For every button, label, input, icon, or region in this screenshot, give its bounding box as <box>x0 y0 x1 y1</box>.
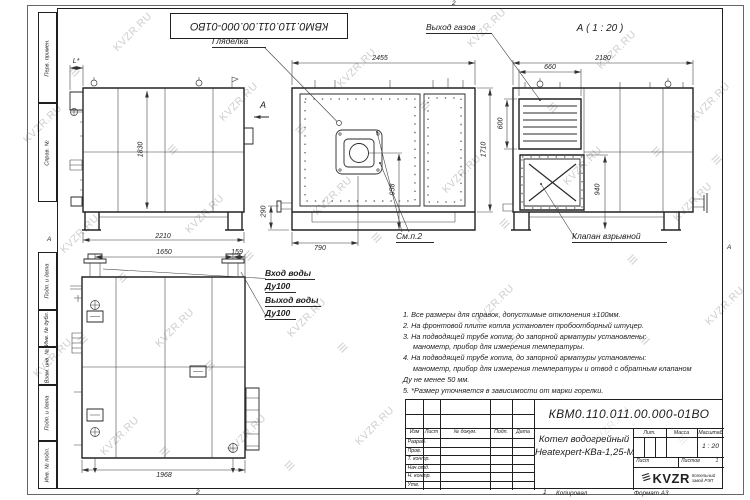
dim-1650: 1650 <box>139 248 189 257</box>
strip-inv-podl: Инв. № подл. <box>38 441 57 489</box>
tb-product-line2: Heatexpert-КВа-1,25-М <box>535 446 633 460</box>
zone-marker-bottom-left: 2 <box>196 489 200 496</box>
water-outlet-dn-label: Ду100 <box>265 308 296 320</box>
dim-600: 600 <box>497 104 506 144</box>
dim-2180: 2180 <box>573 54 633 63</box>
note-line: 2. На фронтовой плите котла установлен п… <box>403 321 738 332</box>
view-a-title: А ( 1 : 20 ) <box>556 23 644 34</box>
note-line: 3. На подводящей трубе котла, до запорно… <box>403 332 738 343</box>
tb-sheets-value: 1 <box>711 458 723 465</box>
copied-label: Копировал <box>556 490 587 497</box>
tb-row-nachotd: Нач.отд. <box>408 465 441 472</box>
dim-1710: 1710 <box>480 130 489 170</box>
tb-mass-label: Масса <box>666 430 697 437</box>
note-line: 5. *Размер уточняется в зависимости от м… <box>403 386 738 397</box>
tb-row-tkontr: Т. контр. <box>408 456 441 463</box>
tb-row-nkontr: Н. контр. <box>408 473 441 480</box>
tb-scale-value: 1 : 20 <box>697 443 724 450</box>
note-line: манометр, прибор для измерения температу… <box>403 342 738 353</box>
tb-lit-label: Лит. <box>633 430 666 437</box>
section-arrow-label: А <box>260 100 266 110</box>
dim-159: 159 <box>226 248 248 257</box>
strip-inv-dubl: Инв. № дубл. <box>38 310 57 347</box>
explosion-valve-label: Клапан взрывной <box>572 231 667 243</box>
dim-1968: 1968 <box>139 471 189 480</box>
company-subtitle: Котельный завод РЭП <box>692 473 715 483</box>
dim-940: 940 <box>594 170 603 210</box>
tb-product-line1: Котел водогрейный <box>535 433 633 447</box>
sight-glass-label: Гляделка <box>212 36 266 48</box>
strip-podp-data-1: Подп. и дата <box>38 252 57 310</box>
dim-660: 660 <box>527 63 573 72</box>
zone-marker-top: 2 <box>452 0 456 7</box>
dim-2210: 2210 <box>138 232 188 241</box>
gas-outlet-label: Выход газов <box>426 22 492 34</box>
dim-790: 790 <box>300 244 340 253</box>
water-inlet-dn-label: Ду100 <box>265 281 296 293</box>
strip-perv-primen: Перв. примен. <box>38 12 57 103</box>
zone-marker-bottom-right: 1 <box>543 489 547 496</box>
tb-col-izm: Изм <box>406 429 423 436</box>
note-line: манометр, прибор для измерения температу… <box>403 364 738 375</box>
water-outlet-label: Выход воды <box>265 295 321 307</box>
dim-l-star: L* <box>66 57 86 66</box>
tb-col-podp: Подп. <box>490 429 512 436</box>
dim-958: 958 <box>389 170 398 210</box>
dim-290: 290 <box>260 192 269 232</box>
tb-scale-label: Масштаб <box>697 430 724 437</box>
note-line: 4. На подводящей трубе котла, до запорно… <box>403 353 738 364</box>
tb-col-docnum: № докум. <box>440 429 490 436</box>
drawing-sheet: ≡≡≡≡≡≡≡≡≡≡≡≡≡≡≡≡≡≡≡≡≡≡KVZR.RUKVZR.RUKVZR… <box>0 0 750 500</box>
zone-marker-right: А <box>727 244 731 251</box>
tb-row-razrab: Разраб. <box>408 439 441 446</box>
tb-col-data: Дата <box>512 429 534 436</box>
company-logo-text: KVZR <box>653 471 690 486</box>
strip-sprav-no: Справ. № <box>38 103 57 202</box>
format-label: Формат А3 <box>634 490 668 497</box>
tb-sheet-label: Лист <box>636 458 676 465</box>
tb-col-list: Лист <box>423 429 440 436</box>
note-line: 1. Все размеры для справок, допустимые о… <box>403 310 738 321</box>
water-inlet-label: Вход воды <box>265 268 315 280</box>
zone-marker-left: А <box>47 236 51 243</box>
tb-doc-number: КВМ0.110.011.00.000-01ВО <box>534 401 724 428</box>
top-doc-number: КВМ0.110.011.00.000-01ВО <box>190 20 329 32</box>
notes-block: 1. Все размеры для справок, допустимые о… <box>403 310 738 396</box>
company-logo: ≡ KVZR Котельный завод РЭП <box>633 467 724 490</box>
dim-1830: 1830 <box>137 130 146 170</box>
note-line: Ду не менее 50 мм. <box>403 375 738 386</box>
see-note-label: См.п.2 <box>396 231 434 243</box>
title-block: Изм Лист № докум. Подп. Дата Разраб. Про… <box>405 399 723 489</box>
tb-sheets-label: Листов <box>681 458 711 465</box>
strip-podp-data-2: Подп. и дата <box>38 385 57 441</box>
dim-2455: 2455 <box>350 54 410 63</box>
tb-row-utv: Утв. <box>408 482 441 489</box>
tb-row-prov: Пров. <box>408 448 441 455</box>
company-logo-icon: ≡ <box>640 470 653 486</box>
strip-vzam-inv: Взам. инв. № <box>38 347 57 385</box>
